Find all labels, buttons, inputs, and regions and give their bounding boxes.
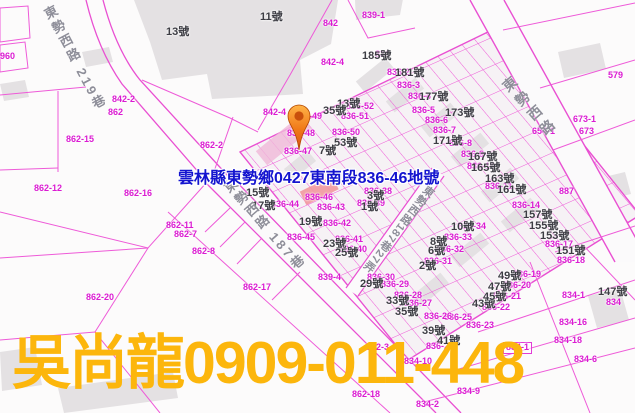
parcel-label: 579 xyxy=(608,71,623,80)
parcel-label: 842 xyxy=(323,19,338,28)
map-canvas[interactable]: 960842-2862862-15862-2862-12862-16862-11… xyxy=(0,0,635,413)
parcel-label: 862-2 xyxy=(200,141,223,150)
house-number-label: 53號 xyxy=(334,138,357,149)
parcel-label: 862 xyxy=(108,108,123,117)
parcel-label: 862-15 xyxy=(66,135,94,144)
parcel-label: 834-6 xyxy=(574,355,597,364)
house-number-label: 8號 xyxy=(430,237,447,248)
parcel-label: 836-5 xyxy=(412,106,435,115)
house-number-label: 177號 xyxy=(419,92,448,103)
house-number-label: 173號 xyxy=(445,108,474,119)
house-number-label: 35號 xyxy=(395,307,418,318)
parcel-label: 836-42 xyxy=(323,219,351,228)
parcel-label: 842-4 xyxy=(263,108,286,117)
parcel-label: 834-18 xyxy=(554,336,582,345)
parcel-label: 842-2 xyxy=(112,95,135,104)
house-number-label: 2號 xyxy=(419,261,436,272)
parcel-label: 862-20 xyxy=(86,293,114,302)
house-number-label: 147號 xyxy=(598,287,627,298)
parcel-label: 836-43 xyxy=(317,203,345,212)
house-number-label: 35號 xyxy=(323,106,346,117)
house-number-label: 185號 xyxy=(362,51,391,62)
parcel-label: 836-46 xyxy=(305,193,333,202)
parcel-label: 834-2 xyxy=(416,400,439,409)
parcel-label: 862-16 xyxy=(124,189,152,198)
parcel-label: 839-1 xyxy=(362,11,385,20)
contact-watermark: 吳尚龍0909-011-448 xyxy=(12,334,523,393)
parcel-label: 862-7 xyxy=(174,230,197,239)
house-number-label: 7號 xyxy=(319,146,336,157)
parcel-label: 960 xyxy=(0,52,15,61)
house-number-label: 171號 xyxy=(433,136,462,147)
parcel-label: 836-50 xyxy=(332,128,360,137)
parcel-label: 836-45 xyxy=(287,233,315,242)
parcel-label: 836-26 xyxy=(424,312,452,321)
parcel-label: 836-33 xyxy=(444,233,472,242)
parcel-label: 834-16 xyxy=(559,318,587,327)
parcel-label: 862-12 xyxy=(34,184,62,193)
house-number-label: 161號 xyxy=(497,185,526,196)
parcel-label: 673-1 xyxy=(573,115,596,124)
parcel-label: 834 xyxy=(606,298,621,307)
house-number-label: 19號 xyxy=(299,217,322,228)
house-number-label: 47號 xyxy=(488,282,511,293)
house-number-label: 151號 xyxy=(556,246,585,257)
parcel-label: 836-3 xyxy=(397,81,420,90)
parcel-label: 862-17 xyxy=(243,283,271,292)
parcel-label: 673 xyxy=(579,127,594,136)
house-number-label: 1號 xyxy=(361,202,378,213)
location-pin-icon[interactable] xyxy=(287,104,311,152)
house-number-label: 3號 xyxy=(367,191,384,202)
parcel-label: 842-4 xyxy=(321,58,344,67)
house-number-label: 13號 xyxy=(166,27,189,38)
house-number-label: 25號 xyxy=(335,248,358,259)
house-number-label: 153號 xyxy=(540,231,569,242)
house-number-label: 29號 xyxy=(360,279,383,290)
house-number-label: 49號 xyxy=(498,271,521,282)
house-number-label: 181號 xyxy=(395,68,424,79)
house-number-label: 45號 xyxy=(483,292,506,303)
house-number-label: 11號 xyxy=(260,12,283,23)
parcel-address-label: 雲林縣東勢鄉0427東南段836-46地號 xyxy=(178,164,439,188)
parcel-label: 836-18 xyxy=(557,256,585,265)
parcel-label: 887 xyxy=(559,187,574,196)
parcel-label: 862-8 xyxy=(192,247,215,256)
parcel-label: 836-7 xyxy=(433,126,456,135)
house-number-label: 10號 xyxy=(451,222,474,233)
parcel-label: 839-4 xyxy=(318,273,341,282)
parcel-label: 836-23 xyxy=(466,321,494,330)
parcel-label: 834-1 xyxy=(562,291,585,300)
